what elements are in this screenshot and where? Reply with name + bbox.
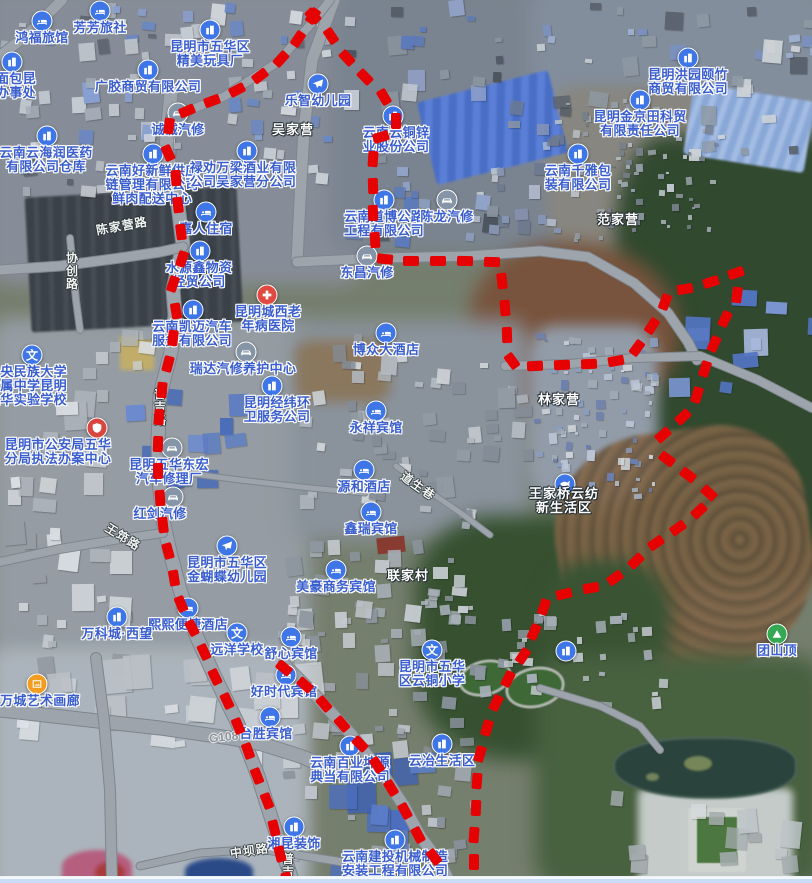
- poi-label-line: 中央民族大学: [0, 365, 67, 379]
- poi-label[interactable]: 水源鑫物资经贸公司: [166, 261, 233, 289]
- poi-label[interactable]: 昆明市公安局五华分局执法办案中心: [5, 438, 111, 466]
- hotel-icon[interactable]: [32, 11, 53, 32]
- poi-label-line: 云南建投机械制造: [342, 850, 448, 864]
- poi-label[interactable]: 台胜宾馆: [239, 727, 292, 741]
- company-icon[interactable]: [37, 126, 58, 147]
- poi-label[interactable]: 广胶商贸有限公司: [95, 80, 201, 94]
- poi-label[interactable]: 博众大酒店: [353, 343, 420, 357]
- poi-label-line: 办事处: [0, 86, 36, 100]
- hotel-icon[interactable]: [366, 401, 387, 422]
- company-icon[interactable]: [138, 60, 159, 81]
- poi-label-line: 鑫瑞宾馆: [344, 522, 397, 536]
- company-icon[interactable]: [190, 241, 211, 262]
- poi-label[interactable]: 万城艺术画廊: [0, 694, 80, 708]
- poi-label-line: 东昌汽修: [340, 266, 393, 280]
- poi-label[interactable]: 红剑汽修: [133, 507, 186, 521]
- poi-label-line: 芳芳旅社: [73, 21, 126, 35]
- poi-label-line: 年病医院: [235, 319, 302, 333]
- poi-label-line: 有限责任公司: [593, 124, 686, 138]
- poi-label[interactable]: 云南建投机械制造安装工程有限公司: [342, 850, 448, 878]
- poi-label-line: 昆明市五华区: [187, 556, 267, 570]
- poi-label[interactable]: 云南道博公路工程有限公司: [344, 210, 424, 238]
- repair-icon[interactable]: [437, 190, 458, 211]
- poi-label-line: 云南云海润医药: [0, 146, 93, 160]
- poi-label-line: 云冶生活区: [409, 754, 476, 768]
- company-icon[interactable]: [237, 141, 258, 162]
- poi-label[interactable]: 云冶生活区: [409, 754, 476, 768]
- poi-label[interactable]: 远洋学校: [210, 643, 263, 657]
- poi-label-line: 业股份公司: [363, 140, 430, 154]
- poi-label[interactable]: 好时代宾馆: [251, 685, 318, 699]
- company-icon[interactable]: [568, 144, 589, 165]
- poi-label-line: 商贸有限公司: [648, 82, 728, 96]
- poi-label-line: 源和酒店: [337, 480, 390, 494]
- hotel-icon[interactable]: [178, 598, 199, 619]
- poi-label-line: 面包昆: [0, 72, 36, 86]
- poi-label-line: 红剑汽修: [133, 507, 186, 521]
- poi-label[interactable]: 永祥宾馆: [349, 421, 402, 435]
- mountain-icon[interactable]: [767, 624, 788, 645]
- place-label-line: 新生活区: [529, 501, 599, 515]
- poi-label-line: 昆明市五华: [399, 660, 466, 674]
- hotel-icon[interactable]: [376, 323, 397, 344]
- poi-label-line: 鲜肉配送中心: [105, 192, 198, 206]
- poi-label-line: 陈龙汽修: [420, 210, 473, 224]
- poi-label[interactable]: 瑞达汽修养护中心: [190, 362, 296, 376]
- poi-label[interactable]: 嘉人住宿: [179, 222, 232, 236]
- poi-label-line: 区云铜小学: [399, 674, 466, 688]
- kindergarten-icon[interactable]: [217, 536, 238, 557]
- poi-label-line: 万城艺术画廊: [0, 694, 80, 708]
- poi-label-line: 服务有限公司: [152, 334, 232, 348]
- poi-label-line: 昆明市五华区: [170, 40, 250, 54]
- poi-label-line: 云南好新鲜供应: [105, 164, 198, 178]
- poi-label[interactable]: 鸿福旅馆: [15, 31, 68, 45]
- hospital-icon[interactable]: [257, 285, 278, 306]
- kindergarten-icon[interactable]: [308, 74, 329, 95]
- poi-label-line: 云南云铜锌: [363, 126, 430, 140]
- hotel-icon[interactable]: [361, 502, 382, 523]
- poi-label-line: 五华实验学校: [0, 393, 67, 407]
- poi-label-line: 禄劝万梁酒业有限: [190, 161, 296, 175]
- hotel-icon[interactable]: [354, 460, 375, 481]
- poi-label-line: 分局执法办案中心: [5, 452, 111, 466]
- poi-label-line: 经贸公司: [166, 275, 233, 289]
- poi-label[interactable]: 湘昆装饰: [267, 837, 320, 851]
- school-icon[interactable]: 文: [22, 345, 43, 366]
- gallery-icon[interactable]: [27, 674, 48, 695]
- poi-label[interactable]: 云南云铜锌业股份公司: [363, 126, 430, 154]
- company-icon[interactable]: [183, 300, 204, 321]
- poi-label[interactable]: 陈龙汽修: [420, 210, 473, 224]
- poi-label[interactable]: 云南好新鲜供应链管理有限公司鲜肉配送中心: [105, 164, 198, 206]
- poi-label-line: 典当有限公司: [310, 770, 390, 784]
- company-icon[interactable]: [630, 90, 651, 111]
- place-label-line: 范家营: [597, 213, 639, 227]
- poi-label-line: 远洋学校: [210, 643, 263, 657]
- poi-label-line: 舒心宾馆: [264, 647, 317, 661]
- poi-label[interactable]: 昆明城西老年病医院: [235, 305, 302, 333]
- poi-label[interactable]: 面包昆办事处: [0, 72, 36, 100]
- labels-layer: 鸿福旅馆芳芳旅社昆明市五华区精美玩具厂面包昆办事处广胶商贸有限公司诚诚汽修乐智幼…: [0, 0, 812, 883]
- poi-label[interactable]: 中央民族大学附属中学昆明五华实验学校: [0, 365, 67, 407]
- place-label-line: 林家营: [538, 393, 580, 407]
- poi-label[interactable]: 昆明金京田科贸有限责任公司: [593, 110, 686, 138]
- poi-label[interactable]: 鑫瑞宾馆: [344, 522, 397, 536]
- poi-label-line: 鸿福旅馆: [15, 31, 68, 45]
- poi-label-line: 昆明市公安局五华: [5, 438, 111, 452]
- company-icon[interactable]: [2, 52, 23, 73]
- repair-icon[interactable]: [163, 487, 184, 508]
- poi-label-line: 链管理有限公司: [105, 178, 198, 192]
- company-icon[interactable]: [556, 641, 577, 662]
- school-icon[interactable]: 文: [422, 640, 443, 661]
- daosheng-lane: 道生巷: [397, 469, 436, 502]
- hotel-icon[interactable]: [260, 707, 281, 728]
- hotel-icon[interactable]: [281, 627, 302, 648]
- poi-label-line: 诚诚汽修: [151, 123, 204, 137]
- school-icon[interactable]: 文: [227, 623, 248, 644]
- hotel-icon[interactable]: [196, 202, 217, 223]
- poi-label-line: 昆明经纬环: [244, 396, 311, 410]
- poi-label-line: 装有限公司: [545, 178, 612, 192]
- poi-label-line: 云南凯迈汽车: [152, 320, 232, 334]
- poi-label-line: 永祥宾馆: [349, 421, 402, 435]
- poi-label[interactable]: 云南百业坤源典当有限公司: [310, 756, 390, 784]
- poi-label-line: 嘉人住宿: [179, 222, 232, 236]
- place-label-line: 联家村: [387, 569, 429, 583]
- poi-label[interactable]: 团山顶: [757, 644, 797, 658]
- company-icon[interactable]: [340, 736, 361, 757]
- poi-label-line: 团山顶: [757, 644, 797, 658]
- poi-label-line: 昆明五华东宏: [129, 458, 209, 472]
- poi-label-line: 台胜宾馆: [239, 727, 292, 741]
- poi-label-line: 博众大酒店: [353, 343, 420, 357]
- residence-icon[interactable]: [107, 607, 128, 628]
- poi-label[interactable]: 昆明市五华区精美玩具厂: [170, 40, 250, 68]
- poi-label-line: 昆明洪园颐竹: [648, 68, 728, 82]
- poi-label-line: 有限公司仓库: [0, 160, 93, 174]
- poi-label[interactable]: 诚诚汽修: [151, 123, 204, 137]
- poi-label[interactable]: 芳芳旅社: [73, 21, 126, 35]
- poi-label[interactable]: 熙熙便捷酒店: [148, 618, 228, 632]
- repair-icon[interactable]: [168, 103, 189, 124]
- company-icon[interactable]: [200, 20, 221, 41]
- poi-label-line: 附属中学昆明: [0, 379, 67, 393]
- puji-road-north: 普吉路: [154, 388, 166, 427]
- poi-label[interactable]: 昆明洪园颐竹商贸有限公司: [648, 68, 728, 96]
- poi-label-line: 昆明城西老: [235, 305, 302, 319]
- poi-label-line: 水源鑫物资: [166, 261, 233, 275]
- company-icon[interactable]: [374, 190, 395, 211]
- repair-icon[interactable]: [162, 438, 183, 459]
- poi-label-line: 瑞达汽修养护中心: [190, 362, 296, 376]
- poi-label[interactable]: 昆明市五华区金蝴蝶幼儿园: [187, 556, 267, 584]
- bottom-bar: [0, 876, 812, 883]
- poi-label[interactable]: 云南云海润医药有限公司仓库: [0, 146, 93, 174]
- wangqiong-road: 王筇路: [102, 521, 142, 553]
- poi-label-line: 好时代宾馆: [251, 685, 318, 699]
- hotel-icon[interactable]: [90, 1, 111, 22]
- poi-label-line: 金蝴蝶幼儿园: [187, 570, 267, 584]
- poi-label[interactable]: 昆明市五华区云铜小学: [399, 660, 466, 688]
- poi-label-line: 乐智幼儿园: [285, 94, 352, 108]
- chenjiaying-road: 陈家营路: [95, 215, 148, 237]
- poi-label[interactable]: 美豪商务宾馆: [296, 580, 376, 594]
- satellite-map[interactable]: 鸿福旅馆芳芳旅社昆明市五华区精美玩具厂面包昆办事处广胶商贸有限公司诚诚汽修乐智幼…: [0, 0, 812, 883]
- poi-label-line: 云南道博公路: [344, 210, 424, 224]
- company-icon[interactable]: [143, 144, 164, 165]
- repair-icon[interactable]: [357, 246, 378, 267]
- company-icon[interactable]: [385, 830, 406, 851]
- company-icon[interactable]: [262, 376, 283, 397]
- poi-label-line: 广胶商贸有限公司: [95, 80, 201, 94]
- police-icon[interactable]: [87, 418, 108, 439]
- hotel-icon[interactable]: [276, 665, 297, 686]
- poi-label-line: 公司吴家营分公司: [190, 175, 296, 189]
- poi-label-line: 昆明金京田科贸: [593, 110, 686, 124]
- poi-label-line: 精美玩具厂: [170, 54, 250, 68]
- poi-label[interactable]: 东昌汽修: [340, 266, 393, 280]
- poi-label[interactable]: 禄劝万梁酒业有限公司吴家营分公司: [190, 161, 296, 189]
- hotel-icon[interactable]: [326, 560, 347, 581]
- repair-icon[interactable]: [236, 342, 257, 363]
- poi-label[interactable]: 源和酒店: [337, 480, 390, 494]
- residence-icon[interactable]: [432, 734, 453, 755]
- poi-label-line: 熙熙便捷酒店: [148, 618, 228, 632]
- poi-label-line: 汽车修理厂: [129, 472, 209, 486]
- poi-label[interactable]: 云南千雅包装有限公司: [545, 164, 612, 192]
- place-label-line: 吴家营: [272, 123, 314, 137]
- poi-label-line: 云南百业坤源: [310, 756, 390, 770]
- poi-label-line: 卫服务公司: [244, 410, 311, 424]
- poi-label[interactable]: 舒心宾馆: [264, 647, 317, 661]
- zhongba-road: 中坝路: [229, 842, 269, 860]
- poi-label[interactable]: 乐智幼儿园: [285, 94, 352, 108]
- poi-label-line: 湘昆装饰: [267, 837, 320, 851]
- poi-label-line: 美豪商务宾馆: [296, 580, 376, 594]
- poi-label[interactable]: 万科城·西望: [81, 627, 152, 641]
- xiechuang-road: 协创路: [66, 252, 78, 291]
- poi-label-line: 万科城·西望: [81, 627, 152, 641]
- poi-label[interactable]: 昆明五华东宏汽车修理厂: [129, 458, 209, 486]
- poi-label[interactable]: 昆明经纬环卫服务公司: [244, 396, 311, 424]
- poi-label[interactable]: 云南凯迈汽车服务有限公司: [152, 320, 232, 348]
- place-label-line: 王家桥云纺: [529, 487, 599, 501]
- company-icon[interactable]: [383, 106, 404, 127]
- g108-road: G108: [208, 729, 239, 745]
- company-icon[interactable]: [678, 48, 699, 69]
- company-icon[interactable]: [284, 817, 305, 838]
- poi-label-line: 工程有限公司: [344, 224, 424, 238]
- poi-label-line: 云南千雅包: [545, 164, 612, 178]
